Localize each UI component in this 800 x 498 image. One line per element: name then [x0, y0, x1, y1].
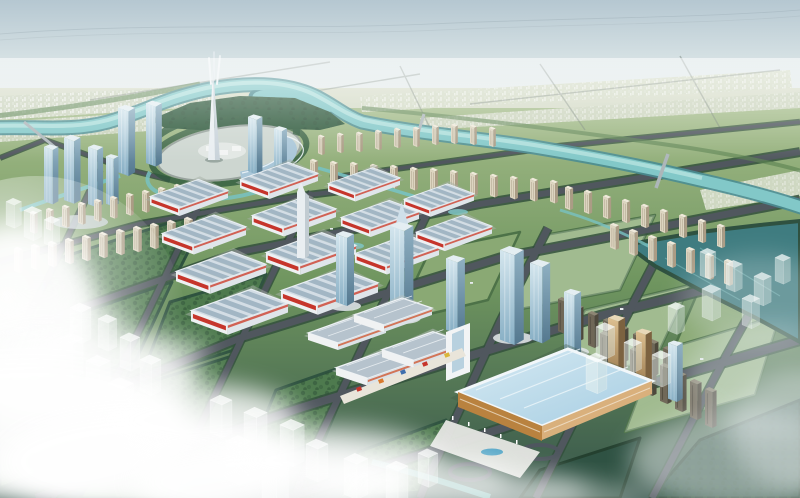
forecourt-pool: [481, 449, 503, 456]
glass-tower: [530, 259, 550, 343]
horizon-haze: [0, 58, 800, 162]
glass-tower: [446, 255, 465, 334]
glass-tower: [336, 231, 354, 306]
glass-tower-tall: [500, 246, 524, 345]
aerial-city-masterplan-rendering: [0, 0, 800, 498]
rendering-canvas: [0, 0, 800, 498]
